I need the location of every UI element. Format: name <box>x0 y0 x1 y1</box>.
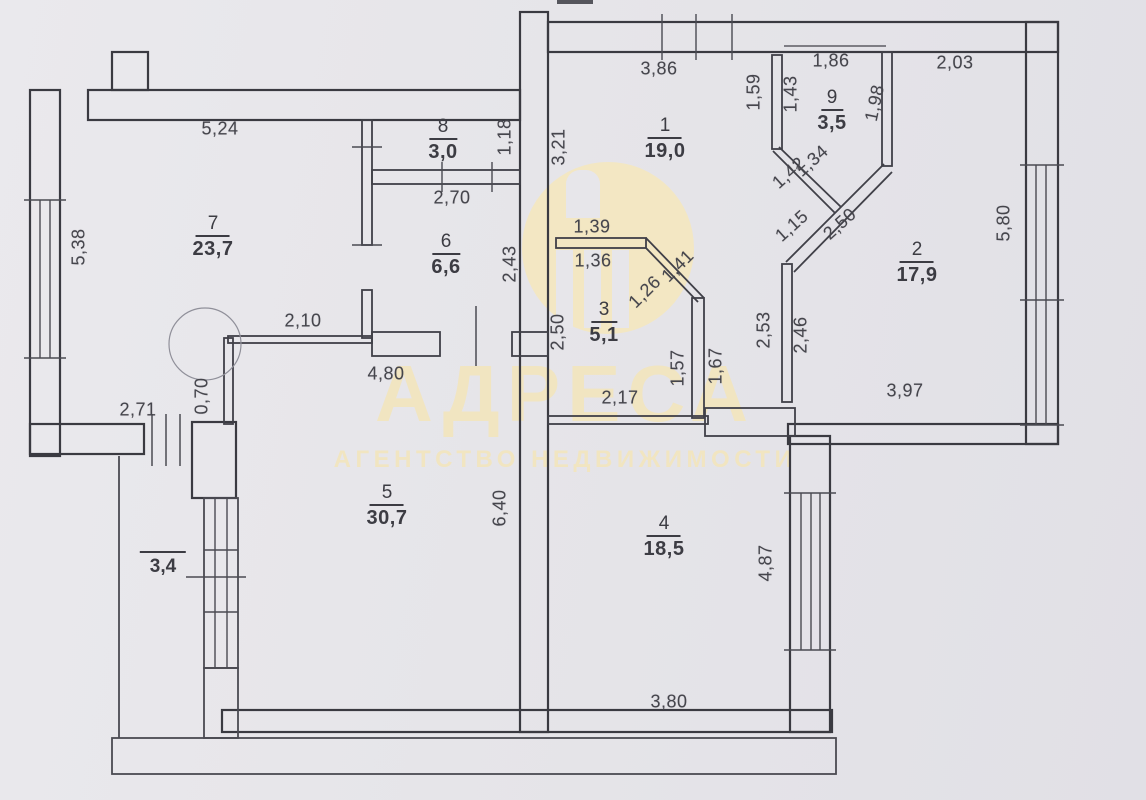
dimension-3-86: 3,86 <box>640 59 677 80</box>
dimension-1-86: 1,86 <box>812 51 849 72</box>
room-number: 1 <box>645 116 686 135</box>
dimension-1-18: 1,18 <box>495 118 516 155</box>
dimension-1-43: 1,43 <box>781 75 802 112</box>
dimension-4-87: 4,87 <box>756 544 777 581</box>
dimension-2-50-vertical: 2,50 <box>548 313 569 350</box>
room-label-2: 2 17,9 <box>897 240 938 285</box>
dimension-2-43: 2,43 <box>500 245 521 282</box>
room-label-7: 7 23,7 <box>193 214 234 259</box>
room-label-5: 5 30,7 <box>367 483 408 528</box>
room-area: 19,0 <box>645 141 686 161</box>
room-area: 6,6 <box>431 257 460 277</box>
room-label-4: 4 18,5 <box>644 514 685 559</box>
dimension-2-17: 2,17 <box>601 388 638 409</box>
room-number: 5 <box>367 483 408 502</box>
room-number: 6 <box>431 232 460 251</box>
room-area: 17,9 <box>897 265 938 285</box>
room-fraction-line <box>647 535 681 537</box>
balcony-area-label: 3,4 <box>140 551 186 578</box>
room-fraction-line <box>432 253 460 255</box>
dimension-5-24: 5,24 <box>201 119 238 140</box>
room-number: 4 <box>644 514 685 533</box>
balcony-structure <box>112 456 836 774</box>
dimension-2-03: 2,03 <box>936 53 973 74</box>
room-number: 7 <box>193 214 234 233</box>
room-area: 30,7 <box>367 508 408 528</box>
room-fraction-line <box>370 504 404 506</box>
dimension-5-38: 5,38 <box>69 228 90 265</box>
room-number: 8 <box>428 117 457 136</box>
door-marks <box>152 147 476 466</box>
room-area: 3,5 <box>817 113 846 133</box>
room-fraction-line <box>429 138 457 140</box>
dimension-2-53: 2,53 <box>754 311 775 348</box>
room-label-1: 1 19,0 <box>645 116 686 161</box>
dimension-2-71: 2,71 <box>119 400 156 421</box>
dimension-3-21: 3,21 <box>549 128 570 165</box>
floor-plan-drawing <box>0 0 1146 800</box>
dimension-5-80: 5,80 <box>994 204 1015 241</box>
room-area: 5,1 <box>589 325 618 345</box>
room-number: 2 <box>897 240 938 259</box>
room-fraction-line <box>821 109 843 111</box>
room-fraction-line <box>900 261 934 263</box>
room-fraction-line <box>196 235 230 237</box>
room-label-6: 6 6,6 <box>431 232 460 277</box>
dimension-1-36: 1,36 <box>574 251 611 272</box>
dimension-3-97: 3,97 <box>886 381 923 402</box>
dimension-2-70: 2,70 <box>433 188 470 209</box>
room-area: 3,0 <box>428 142 457 162</box>
floor-plan-scan: АДРЕСА АГЕНТСТВО НЕДВИЖИМОСТИ <box>0 0 1146 800</box>
door-swing-arc <box>169 308 241 380</box>
dimension-2-46: 2,46 <box>791 316 812 353</box>
outer-walls <box>30 12 1058 732</box>
dimension-1-59: 1,59 <box>744 73 765 110</box>
room-number: 3 <box>589 300 618 319</box>
room-number: 9 <box>817 88 846 107</box>
dimension-1-67: 1,67 <box>706 347 727 384</box>
room-fraction-line <box>648 137 682 139</box>
dimension-6-40: 6,40 <box>490 489 511 526</box>
dimension-3-80: 3,80 <box>650 692 687 713</box>
dimension-0-70: 0,70 <box>192 377 213 414</box>
room-label-8: 8 3,0 <box>428 117 457 162</box>
dimension-2-10: 2,10 <box>284 311 321 332</box>
room-label-3: 3 5,1 <box>589 300 618 345</box>
room-fraction-line <box>591 321 617 323</box>
dimension-1-39: 1,39 <box>573 217 610 238</box>
dimension-1-57: 1,57 <box>668 349 689 386</box>
top-edge-mark <box>557 0 593 4</box>
room-area: 18,5 <box>644 539 685 559</box>
room-area: 23,7 <box>193 239 234 259</box>
dimension-4-80: 4,80 <box>367 364 404 385</box>
room-label-9: 9 3,5 <box>817 88 846 133</box>
